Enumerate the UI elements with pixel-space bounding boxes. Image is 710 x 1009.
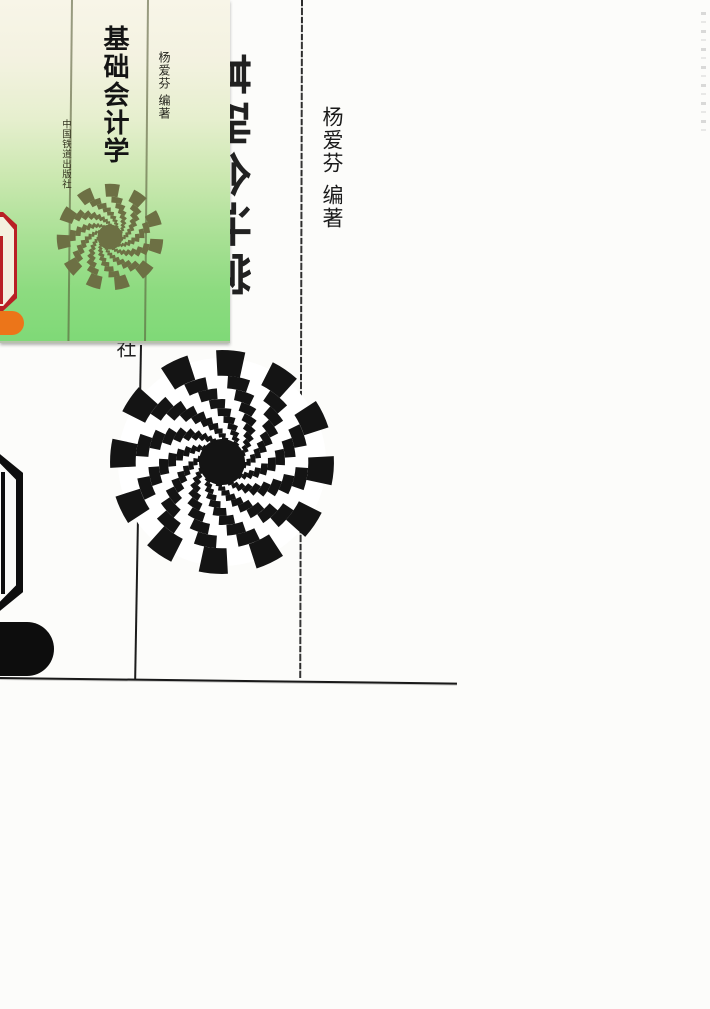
black-ring-logo-bar: [1, 472, 5, 594]
checkerboard-vortex-graphic-large: [102, 342, 342, 582]
thumb-author-role: 编著: [156, 94, 173, 120]
scan-author-name: 杨爱芬: [317, 106, 347, 175]
scanned-book-cover-page: 基础会计学 杨爱芬 编著 版社 基础会计学 杨爱芬 编著 中国铁道出版社: [0, 0, 710, 1009]
color-cover-thumbnail: 基础会计学 杨爱芬 编著 中国铁道出版社: [0, 0, 230, 343]
page-bottom-edge-line: [0, 677, 457, 685]
scan-edge-noise: [701, 12, 706, 132]
thumb-book-title: 基础会计学: [96, 25, 133, 165]
checkerboard-vortex-graphic-small: [45, 172, 175, 302]
thumb-author-name: 杨爱芬: [156, 51, 173, 90]
scan-author-role: 编著: [317, 184, 347, 230]
red-ring-logo-bar: [0, 236, 3, 304]
orange-pill-logo: [0, 311, 24, 335]
black-pill-logo: [0, 622, 54, 676]
